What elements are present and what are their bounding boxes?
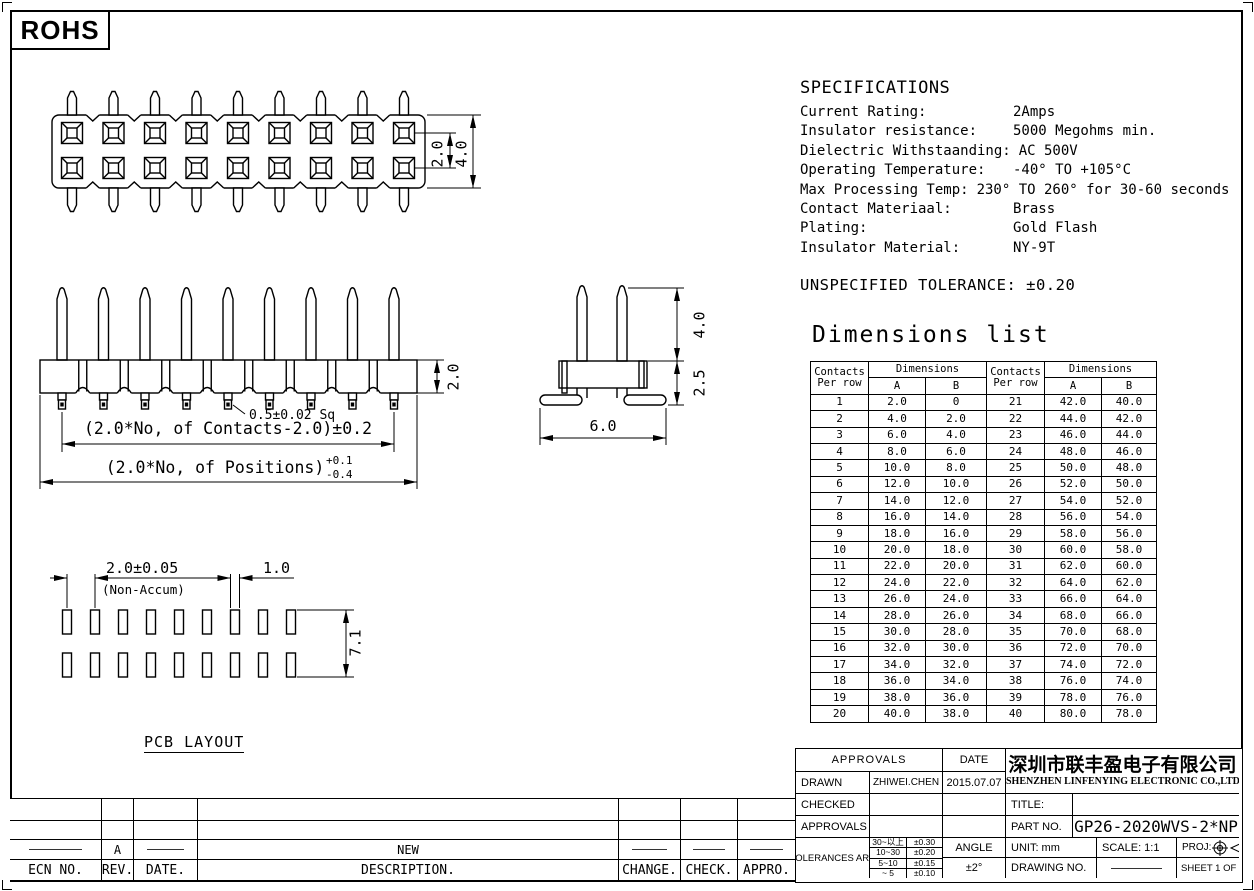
dim-label-positions-span: (2.0*No, of Positions)	[106, 458, 325, 477]
dims-header-cell: ContactsPer row	[987, 362, 1045, 395]
dims-cell: 70.0	[1102, 640, 1157, 656]
tolerance-mini-row: 10~30±0.20	[870, 847, 942, 857]
rev-cell	[618, 839, 680, 859]
dim-label-row-span: 7.1	[347, 629, 365, 656]
dims-cell: 36.0	[869, 673, 926, 689]
tolerance-value: ±0.15	[906, 859, 942, 868]
date-header: DATE	[942, 749, 1005, 771]
dims-cell: 18.0	[869, 525, 926, 541]
dims-cell: 2	[811, 411, 869, 427]
dims-cell: 18.0	[926, 542, 987, 558]
tolerance-mini-table: 30~以上±0.3010~30±0.205~10±0.15~ 5±0.10	[869, 837, 942, 878]
dim-label-contacts-span: (2.0*No, of Contacts-2.0)±0.2	[84, 419, 372, 438]
spec-value: 2Amps	[1005, 103, 1055, 122]
rev-cell	[197, 820, 618, 839]
dims-cell: 60.0	[1045, 542, 1102, 558]
checked-date	[942, 793, 1005, 815]
dims-cell: 52.0	[1102, 493, 1157, 509]
dim-label-foot-span: 6.0	[589, 417, 616, 435]
dim-label-positions-tol-minus: -0.4	[326, 468, 353, 481]
proj-label: PROJ:	[1182, 842, 1211, 853]
dims-cell: 8.0	[869, 443, 926, 459]
dims-cell: 16	[811, 640, 869, 656]
dims-cell: 17	[811, 657, 869, 673]
dims-cell: 58.0	[1102, 542, 1157, 558]
part-no-label: PART NO.	[1005, 815, 1072, 837]
dims-cell: 74.0	[1102, 673, 1157, 689]
dims-cell: 4.0	[869, 411, 926, 427]
dims-cell: 56.0	[1045, 509, 1102, 525]
dims-cell: 10	[811, 542, 869, 558]
tolerance-range: ~ 5	[870, 869, 906, 878]
title-value	[1072, 793, 1239, 815]
rev-header-cell: DATE.	[133, 859, 197, 881]
specifications-title: SPECIFICATIONS	[800, 78, 1220, 98]
drawing-sheet: ROHS 2.0 4.0 0.5±0.02 Sq 2.0	[0, 0, 1254, 891]
unspecified-tolerance-note: UNSPECIFIED TOLERANCE: ±0.20	[800, 276, 1075, 294]
spec-value: -40° TO +105°C	[1005, 161, 1131, 180]
dims-header-cell: Dimensions	[869, 362, 987, 378]
dims-cell: 52.0	[1045, 476, 1102, 492]
dims-cell: 22.0	[869, 558, 926, 574]
company-name-en: SHENZHEN LINFENYING ELECTRONIC CO.,LTD	[1006, 776, 1239, 788]
rev-cell	[618, 799, 680, 820]
rev-header-cell: APPRO.	[737, 859, 795, 881]
dims-cell: 48.0	[1045, 443, 1102, 459]
checked-label: CHECKED	[796, 793, 869, 815]
drawn-date: 2015.07.07	[942, 771, 1005, 793]
dim-label-body-depth: 2.5	[691, 369, 709, 396]
spec-row: Operating Temperature:-40° TO +105°C	[800, 161, 1220, 180]
dims-cell: 24.0	[926, 591, 987, 607]
spec-row: Dielectric Withstaanding:AC 500V	[800, 142, 1220, 161]
rev-cell	[101, 820, 133, 839]
dim-label-body-height: 2.0	[445, 363, 463, 390]
dims-cell: 29	[987, 525, 1045, 541]
dims-cell: 38.0	[869, 689, 926, 705]
dims-cell: 42.0	[1045, 394, 1102, 410]
spec-value: Brass	[1005, 200, 1055, 219]
dims-cell: 8.0	[926, 460, 987, 476]
rev-cell	[10, 820, 101, 839]
dims-cell: 66.0	[1102, 607, 1157, 623]
dims-cell: 24.0	[869, 575, 926, 591]
dims-cell: 25	[987, 460, 1045, 476]
rev-dash	[147, 849, 184, 850]
dims-cell: 12	[811, 575, 869, 591]
dims-cell: 12.0	[869, 476, 926, 492]
dim-label-overall-width: 4.0	[453, 140, 471, 167]
rev-cell	[133, 799, 197, 820]
spec-label: Contact Materiaal:	[800, 200, 1005, 219]
dims-cell: 40	[987, 706, 1045, 722]
rev-dash	[29, 849, 82, 850]
dims-cell: 50.0	[1102, 476, 1157, 492]
dim-label-pad-pitch-note: (Non-Accum)	[102, 582, 185, 597]
dims-cell: 44.0	[1045, 411, 1102, 427]
dimensions-list-table-wrap: ContactsPer rowDimensionsContactsPer row…	[810, 361, 1157, 723]
rev-cell: NEW	[197, 839, 618, 859]
drawn-label: DRAWN	[796, 771, 869, 793]
spec-row: Plating:Gold Flash	[800, 219, 1220, 238]
rohs-badge: ROHS	[10, 10, 110, 50]
dims-header-cell: A	[1045, 378, 1102, 394]
company-cell: 深圳市联丰盈电子有限公司SHENZHEN LINFENYING ELECTRON…	[1005, 749, 1239, 793]
dims-cell: 50.0	[1045, 460, 1102, 476]
dims-cell: 40.0	[1102, 394, 1157, 410]
dims-header-cell: B	[926, 378, 987, 394]
dims-cell: 33	[987, 591, 1045, 607]
drawing-no-dash	[1111, 868, 1162, 869]
dims-cell: 6.0	[926, 443, 987, 459]
dims-cell: 48.0	[1102, 460, 1157, 476]
dims-cell: 12.0	[926, 493, 987, 509]
rev-cell	[737, 820, 795, 839]
approvals-header: APPROVALS	[796, 749, 942, 771]
dims-cell: 10.0	[869, 460, 926, 476]
rev-header-cell: CHECK.	[680, 859, 737, 881]
rev-cell	[10, 799, 101, 820]
dims-cell: 38	[987, 673, 1045, 689]
rev-cell	[618, 820, 680, 839]
dim-label-pin-height: 4.0	[691, 311, 709, 338]
rev-cell	[737, 839, 795, 859]
dims-cell: 20.0	[869, 542, 926, 558]
dims-cell: 74.0	[1045, 657, 1102, 673]
rev-cell	[737, 799, 795, 820]
dims-cell: 68.0	[1102, 624, 1157, 640]
pcb-layout-drawing: 2.0±0.05 (Non-Accum) 1.0 7.1	[42, 552, 372, 752]
dims-cell: 60.0	[1102, 558, 1157, 574]
scale-label: SCALE: 1:1	[1096, 837, 1176, 857]
dims-cell: 30.0	[869, 624, 926, 640]
spec-row: Contact Materiaal:Brass	[800, 200, 1220, 219]
dims-cell: 64.0	[1045, 575, 1102, 591]
rohs-label: ROHS	[20, 15, 99, 46]
dims-cell: 26.0	[869, 591, 926, 607]
tolerance-value: ±0.20	[906, 848, 942, 857]
dims-cell: 26	[987, 476, 1045, 492]
dim-label-row-pitch: 2.0	[429, 140, 447, 167]
rev-dash	[632, 849, 667, 850]
dims-cell: 9	[811, 525, 869, 541]
dims-cell: 46.0	[1102, 443, 1157, 459]
company-names: 深圳市联丰盈电子有限公司SHENZHEN LINFENYING ELECTRON…	[1006, 755, 1239, 788]
spec-row: Insulator resistance:5000 Megohms min.	[800, 122, 1220, 141]
dims-cell: 2.0	[926, 411, 987, 427]
dims-cell: 72.0	[1102, 657, 1157, 673]
spec-label: Operating Temperature:	[800, 161, 1005, 180]
spec-row: Max Processing Temp:230° TO 260° for 30-…	[800, 181, 1220, 200]
dims-cell: 38.0	[926, 706, 987, 722]
dims-cell: 64.0	[1102, 591, 1157, 607]
title-label: TITLE:	[1005, 793, 1072, 815]
spec-label: Plating:	[800, 219, 1005, 238]
dims-cell: 78.0	[1045, 689, 1102, 705]
dims-cell: 3	[811, 427, 869, 443]
rev-cell	[133, 839, 197, 859]
spec-label: Max Processing Temp:	[800, 181, 969, 200]
dimensions-list-title: Dimensions list	[812, 322, 1050, 348]
spec-label: Insulator resistance:	[800, 122, 1005, 141]
dims-cell: 22.0	[926, 575, 987, 591]
spec-value: 5000 Megohms min.	[1005, 122, 1156, 141]
dims-cell: 76.0	[1045, 673, 1102, 689]
projection-cell: PROJ:	[1176, 837, 1239, 857]
dims-cell: 14.0	[926, 509, 987, 525]
dims-cell: 20	[811, 706, 869, 722]
approvals-label: APPROVALS	[796, 815, 869, 837]
top-view-drawing: 2.0 4.0	[40, 88, 500, 230]
tolerance-range: 10~30	[870, 848, 906, 857]
tolerance-mini-row: 30~以上±0.30	[870, 838, 942, 847]
dims-cell: 44.0	[1102, 427, 1157, 443]
dims-cell: 35	[987, 624, 1045, 640]
dims-cell: 42.0	[1102, 411, 1157, 427]
dims-cell: 13	[811, 591, 869, 607]
approvals-by	[869, 815, 942, 837]
dims-cell: 37	[987, 657, 1045, 673]
rev-header-cell: CHANGE.	[618, 859, 680, 881]
dims-header-cell: ContactsPer row	[811, 362, 869, 395]
dims-cell: 0	[926, 394, 987, 410]
rev-dash	[750, 849, 783, 850]
dims-cell: 32.0	[869, 640, 926, 656]
rev-cell	[101, 799, 133, 820]
drawing-no-value	[1096, 857, 1176, 878]
dims-cell: 54.0	[1102, 509, 1157, 525]
dims-cell: 46.0	[1045, 427, 1102, 443]
dim-label-pad-pitch: 2.0±0.05	[106, 559, 178, 577]
side-view-drawing: 4.0 2.5 6.0	[522, 277, 722, 467]
rev-cell: A	[101, 839, 133, 859]
drawing-no-label: DRAWING NO.	[1005, 857, 1096, 878]
spec-label: Current Rating:	[800, 103, 1005, 122]
dims-cell: 54.0	[1045, 493, 1102, 509]
dims-cell: 30.0	[926, 640, 987, 656]
rev-header-cell: DESCRIPTION.	[197, 859, 618, 881]
dims-cell: 78.0	[1102, 706, 1157, 722]
rev-header-cell: REV.	[101, 859, 133, 881]
dims-cell: 22	[987, 411, 1045, 427]
dims-cell: 34.0	[869, 657, 926, 673]
dims-cell: 34.0	[926, 673, 987, 689]
dims-cell: 56.0	[1102, 525, 1157, 541]
dims-cell: 28	[987, 509, 1045, 525]
dims-cell: 72.0	[1045, 640, 1102, 656]
tolerance-range: 5~10	[870, 859, 906, 868]
dims-cell: 15	[811, 624, 869, 640]
dims-header-cell: A	[869, 378, 926, 394]
dims-cell: 4	[811, 443, 869, 459]
dims-cell: 10.0	[926, 476, 987, 492]
corner-mark	[1243, 880, 1253, 890]
dims-cell: 20.0	[926, 558, 987, 574]
dims-cell: 36	[987, 640, 1045, 656]
dims-cell: 19	[811, 689, 869, 705]
specifications-rows: Current Rating:2AmpsInsulator resistance…	[800, 103, 1220, 258]
spec-value: NY-9T	[1005, 239, 1055, 258]
dims-cell: 76.0	[1102, 689, 1157, 705]
dims-cell: 26.0	[926, 607, 987, 623]
sheet-label: SHEET 1 OF 1	[1176, 857, 1239, 878]
pcb-layout-caption: PCB LAYOUT	[144, 733, 244, 753]
specifications-block: SPECIFICATIONS Current Rating:2AmpsInsul…	[800, 78, 1220, 258]
rev-cell	[197, 799, 618, 820]
rev-cell	[680, 839, 737, 859]
dims-cell: 68.0	[1045, 607, 1102, 623]
dims-cell: 40.0	[869, 706, 926, 722]
dims-cell: 30	[987, 542, 1045, 558]
dims-cell: 6	[811, 476, 869, 492]
dims-cell: 39	[987, 689, 1045, 705]
dims-cell: 32.0	[926, 657, 987, 673]
dims-cell: 8	[811, 509, 869, 525]
dims-cell: 5	[811, 460, 869, 476]
spec-label: Dielectric Withstaanding:	[800, 142, 1011, 161]
dims-cell: 4.0	[926, 427, 987, 443]
rev-dash	[693, 849, 725, 850]
dims-cell: 62.0	[1045, 558, 1102, 574]
dims-cell: 34	[987, 607, 1045, 623]
dims-cell: 62.0	[1102, 575, 1157, 591]
dims-cell: 16.0	[926, 525, 987, 541]
front-view-drawing: 0.5±0.02 Sq 2.0 (2.0*No, of Contacts-2.0…	[30, 282, 515, 497]
dims-cell: 2.0	[869, 394, 926, 410]
title-block: APPROVALSDATE深圳市联丰盈电子有限公司SHENZHEN LINFEN…	[795, 748, 1243, 883]
tolerance-value: ±0.10	[906, 869, 942, 878]
dimensions-list-table: ContactsPer rowDimensionsContactsPer row…	[810, 361, 1157, 723]
rev-header-cell: ECN NO.	[10, 859, 101, 881]
dims-cell: 80.0	[1045, 706, 1102, 722]
rev-cell	[680, 799, 737, 820]
dims-cell: 7	[811, 493, 869, 509]
dims-cell: 28.0	[869, 607, 926, 623]
spec-label: Insulator Material:	[800, 239, 1005, 258]
dims-cell: 70.0	[1045, 624, 1102, 640]
dim-label-pad-width: 1.0	[263, 559, 290, 577]
projection-symbol-icon	[1212, 839, 1239, 857]
tolerance-mini-row: 5~10±0.15	[870, 858, 942, 868]
checked-by	[869, 793, 942, 815]
dims-cell: 14	[811, 607, 869, 623]
dims-cell: 58.0	[1045, 525, 1102, 541]
spec-value: 230° TO 260° for 30-60 seconds	[969, 181, 1230, 200]
company-name-cn: 深圳市联丰盈电子有限公司	[1006, 755, 1239, 776]
drawn-by: ZHIWEI.CHEN	[869, 771, 942, 793]
tolerances-label: TOLERANCES ARE	[796, 837, 869, 878]
dims-header-cell: B	[1102, 378, 1157, 394]
angle-label: ANGLE	[942, 837, 1005, 857]
spec-row: Insulator Material:NY-9T	[800, 239, 1220, 258]
part-no-value: GP26-2020WVS-2*NP	[1072, 815, 1239, 837]
corner-mark	[1243, 2, 1253, 12]
spec-value: Gold Flash	[1005, 219, 1097, 238]
dims-cell: 14.0	[869, 493, 926, 509]
revision-table: ANEWECN NO.REV.DATE.DESCRIPTION.CHANGE.C…	[10, 798, 795, 880]
dims-cell: 21	[987, 394, 1045, 410]
tolerance-mini-row: ~ 5±0.10	[870, 868, 942, 878]
dims-cell: 18	[811, 673, 869, 689]
tolerance-range: 30~以上	[870, 838, 906, 847]
dims-cell: 66.0	[1045, 591, 1102, 607]
dims-cell: 23	[987, 427, 1045, 443]
tolerance-value: ±0.30	[906, 838, 942, 847]
dims-cell: 31	[987, 558, 1045, 574]
rev-cell	[680, 820, 737, 839]
dims-cell: 32	[987, 575, 1045, 591]
dims-cell: 1	[811, 394, 869, 410]
spec-row: Current Rating:2Amps	[800, 103, 1220, 122]
dim-label-positions-tol-plus: +0.1	[326, 454, 353, 467]
approvals-date	[942, 815, 1005, 837]
unit-label: UNIT: mm	[1005, 837, 1096, 857]
dims-cell: 11	[811, 558, 869, 574]
dims-cell: 24	[987, 443, 1045, 459]
dims-cell: 16.0	[869, 509, 926, 525]
spec-value: AC 500V	[1011, 142, 1078, 161]
rev-cell	[10, 839, 101, 859]
angle-value: ±2°	[942, 857, 1005, 878]
dims-cell: 28.0	[926, 624, 987, 640]
dims-header-cell: Dimensions	[1045, 362, 1157, 378]
dims-cell: 36.0	[926, 689, 987, 705]
dims-cell: 6.0	[869, 427, 926, 443]
dims-cell: 27	[987, 493, 1045, 509]
rev-cell	[133, 820, 197, 839]
